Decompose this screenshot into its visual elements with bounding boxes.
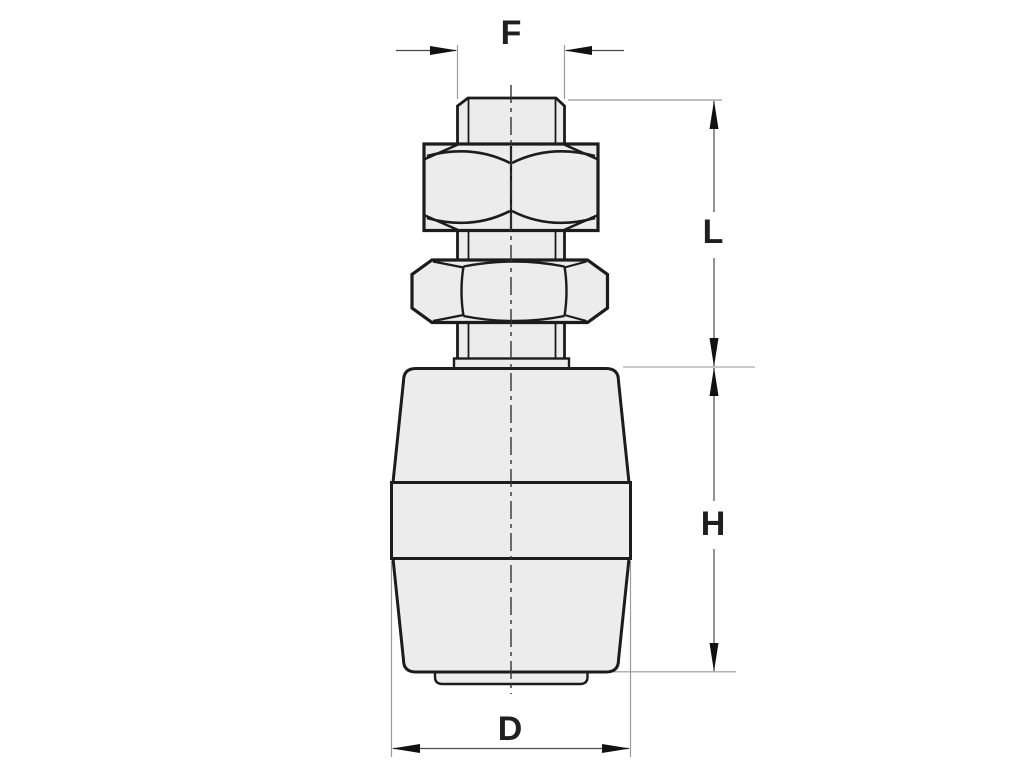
dim-label-d: D [498, 710, 523, 748]
dim-label-l: L [703, 213, 724, 251]
arrowhead-d-right [602, 744, 630, 753]
dimension-l: L [703, 101, 724, 367]
dimension-d: D [392, 710, 630, 753]
roller-assembly-drawing: F L H D [0, 0, 1024, 768]
arrowhead-l-top [710, 101, 719, 130]
hex-nut-lower [412, 260, 608, 323]
dim-label-h: H [701, 505, 726, 543]
technical-drawing-canvas: F L H D [0, 0, 1024, 768]
dimension-f: F [396, 14, 624, 55]
arrowhead-h-top [710, 367, 719, 396]
arrowhead-f-right [565, 46, 593, 55]
dim-label-f: F [501, 14, 522, 52]
arrowhead-l-bottom [710, 338, 719, 367]
arrowhead-h-bottom [710, 643, 719, 672]
nut-lower-outline [412, 260, 608, 323]
arrowhead-d-left [392, 744, 420, 753]
dimension-h: H [701, 367, 726, 671]
arrowhead-f-left [430, 46, 458, 55]
